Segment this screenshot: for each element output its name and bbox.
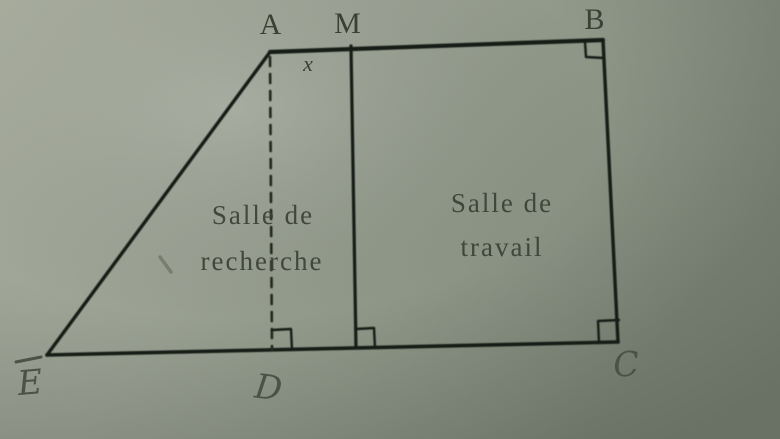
geometry-diagram: A M B x Salle de recherche Salle de trav… <box>0 0 780 439</box>
room-travail-line1: Salle de <box>451 188 553 218</box>
label-C-handwritten: C <box>612 344 641 386</box>
photo-vignette <box>0 0 780 439</box>
label-x: x <box>302 51 313 76</box>
room-recherche-line2: recherche <box>201 246 324 276</box>
label-M: M <box>334 7 362 40</box>
label-B: B <box>584 3 605 36</box>
photo-of-geometry-figure: A M B x Salle de recherche Salle de trav… <box>0 0 780 439</box>
label-E-handwritten: E <box>15 362 44 404</box>
room-recherche-line1: Salle de <box>212 200 314 230</box>
room-travail-line2: travail <box>461 232 544 262</box>
label-A: A <box>260 8 283 41</box>
label-D-handwritten: D <box>251 366 284 409</box>
